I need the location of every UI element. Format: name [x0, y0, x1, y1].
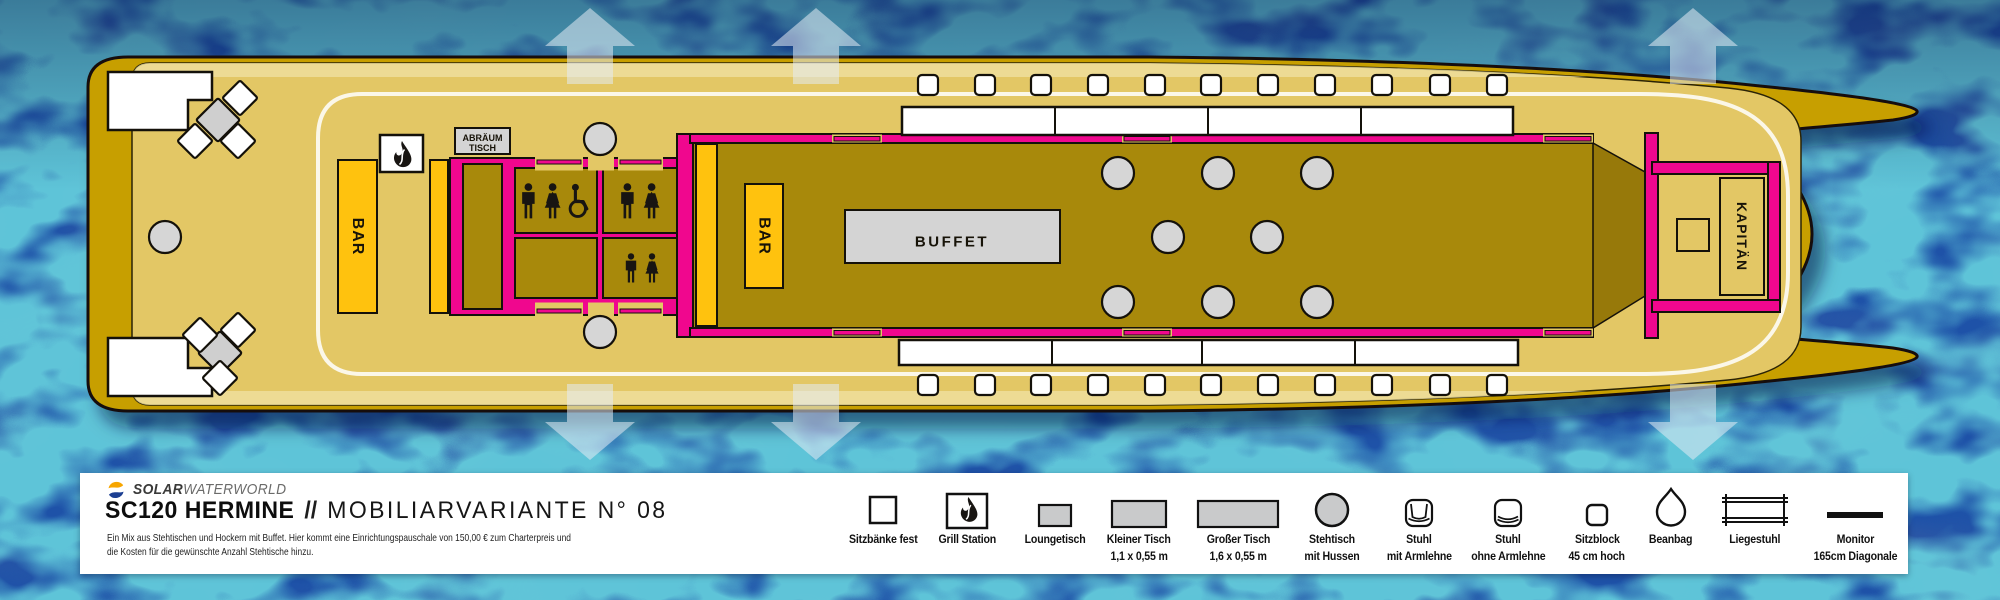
stehtisch-icon [1312, 490, 1352, 530]
legend-label: Liegestuhl [1729, 534, 1780, 547]
fixed-bench-seat [975, 75, 995, 95]
legend-icon-wrap [1491, 482, 1525, 530]
fixed-bench-seat [1372, 75, 1392, 95]
wc-room-bottom [603, 238, 682, 298]
legend-label: Stuhl [1495, 534, 1521, 547]
fixed-bench-seat [1145, 375, 1165, 395]
grosser-tisch-icon [1195, 498, 1281, 530]
fixed-bench-seat [1201, 375, 1221, 395]
legend-label-line2: 1,6 x 0,55 m [1209, 551, 1266, 564]
abraeum-label-line1: ABRÄUM [463, 133, 503, 143]
beanbag-icon [1651, 486, 1691, 530]
fixed-bench-seat [1487, 375, 1507, 395]
wc-block [450, 157, 693, 317]
fixed-bench-seat [1430, 75, 1450, 95]
stehtisch-circle [1102, 286, 1134, 318]
stuhl-mit-armlehne-icon [1402, 496, 1436, 530]
grill-station-icon [945, 492, 989, 530]
side-counter-right [696, 144, 717, 326]
stehtisch-circle [1301, 157, 1333, 189]
wc-closet [463, 164, 502, 309]
fixed-bench-seat [1430, 375, 1450, 395]
bar-label: BAR [349, 218, 366, 256]
fixed-bench-seat [1258, 375, 1278, 395]
fixed-bench-seat [1315, 75, 1335, 95]
legend-icon-wrap [1109, 482, 1169, 530]
legend-item-monitor: Monitor165cm Diagonale [1795, 482, 1915, 564]
fixed-bench-seat [1145, 75, 1165, 95]
legend-icon-wrap [1195, 482, 1281, 530]
legend-label-line2: 45 cm hoch [1569, 551, 1625, 564]
liegestuhl-icon [1718, 490, 1792, 530]
legend-label-line2: mit Armlehne [1386, 551, 1451, 564]
bar-label: BAR [756, 217, 773, 255]
fixed-bench-seat [1315, 375, 1335, 395]
legend-icon-wrap [1582, 482, 1612, 530]
loungetisch-icon [1035, 502, 1075, 530]
stehtisch-circle [1202, 286, 1234, 318]
stehtisch-circle [1202, 157, 1234, 189]
buffet-label: BUFFET [915, 234, 989, 251]
fixed-bench-seat [1031, 375, 1051, 395]
fixed-bench-seat [1088, 375, 1108, 395]
sitzblock-icon [1582, 500, 1612, 530]
fixed-bench-seat [1372, 375, 1392, 395]
legend-items: Sitzbänke festGrill StationLoungetischKl… [80, 473, 1908, 574]
fixed-bench-seat [1088, 75, 1108, 95]
legend-icon-wrap [1651, 482, 1691, 530]
legend-label-line2: ohne Armlehne [1471, 551, 1545, 564]
stehtisch-circle [1102, 157, 1134, 189]
stehtisch-circle [1251, 221, 1283, 253]
legend-icon-wrap [1035, 482, 1075, 530]
legend-label: Loungetisch [1025, 534, 1086, 547]
bench-square-icon [863, 490, 903, 530]
kapitaen-label: KAPITÄN [1734, 202, 1750, 271]
side-counter-left [430, 160, 448, 313]
stuhl-ohne-armlehne-icon [1491, 496, 1525, 530]
legend-icon-wrap [863, 482, 903, 530]
legend-label: Stehtisch [1309, 534, 1355, 547]
stehtisch-circle [584, 123, 616, 155]
legend-label: Stuhl [1406, 534, 1432, 547]
legend-icon-wrap [1823, 482, 1887, 530]
fixed-bench-seat [975, 375, 995, 395]
kleiner-tisch-icon [1109, 498, 1169, 530]
legend-label-line2: mit Hussen [1304, 551, 1359, 564]
abraeum-label-line2: TISCH [469, 143, 496, 153]
fixed-bench-seat [1487, 75, 1507, 95]
stehtisch-circle [1301, 286, 1333, 318]
legend-icon-wrap [1718, 482, 1792, 530]
legend-label: Monitor [1836, 534, 1874, 547]
legend-label: Grill Station [938, 534, 996, 547]
legend-bar: SOLARWATERWORLD SC120 HERMINE // MOBILIA… [80, 473, 1908, 574]
legend-label: Beanbag [1649, 534, 1692, 547]
deck-plan-poster: BAR BAR BUFFET KAPITÄN ABRÄUM TISCH SOLA… [0, 0, 2000, 600]
legend-icon-wrap [1402, 482, 1436, 530]
legend-icon-wrap [945, 482, 989, 530]
fixed-bench-seat [1031, 75, 1051, 95]
wc-room-empty [515, 238, 597, 298]
fixed-bench-seat [918, 375, 938, 395]
fixed-bench-seat [1258, 75, 1278, 95]
fixed-bench-seat [1201, 75, 1221, 95]
legend-label: Kleiner Tisch [1107, 534, 1171, 547]
stehtisch-circle [149, 221, 181, 253]
stehtisch-circle [1152, 221, 1184, 253]
legend-label-line2: 165cm Diagonale [1813, 551, 1897, 564]
legend-label: Großer Tisch [1206, 534, 1269, 547]
stehtisch-circle [584, 316, 616, 348]
fixed-bench-seat [918, 75, 938, 95]
wc-room-top [603, 168, 682, 233]
monitor-icon [1823, 490, 1887, 530]
legend-label-line2: 1,1 x 0,55 m [1110, 551, 1167, 564]
legend-icon-wrap [1312, 482, 1352, 530]
